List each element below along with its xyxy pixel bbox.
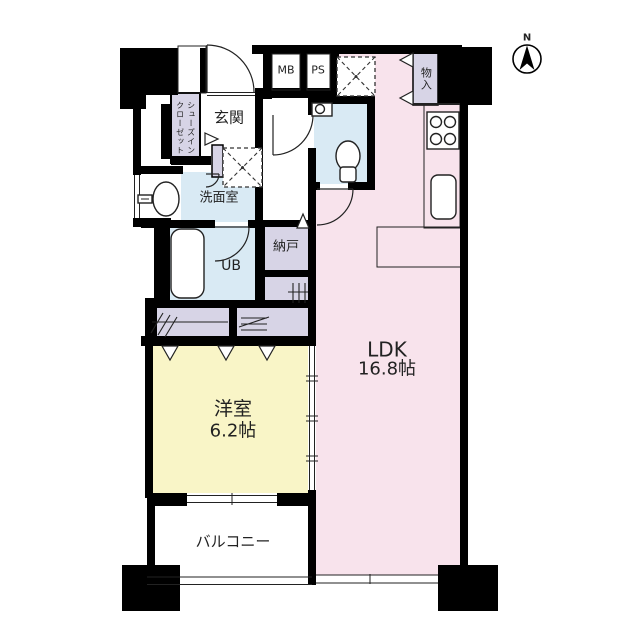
unit-bath-label: UB	[221, 258, 241, 274]
pillar-top-left	[120, 48, 178, 95]
western-room-label: 洋室	[214, 399, 252, 421]
pipe-space-label: PS	[311, 65, 325, 78]
refrigerator-space-icon	[337, 57, 375, 96]
washroom-label: 洗面室	[199, 192, 238, 207]
stove-icon	[427, 112, 459, 149]
floorplan-drawing	[0, 0, 640, 640]
kitchen-sink-icon	[431, 175, 456, 219]
bathtub-icon	[171, 229, 204, 298]
entrance-label: 玄関	[214, 109, 244, 126]
washroom-cabinet	[212, 145, 223, 177]
ldk-size-label: 16.8帖	[358, 360, 416, 381]
washing-machine-space-icon	[223, 148, 262, 187]
entrance-door	[207, 45, 254, 92]
entrance-step-marker	[205, 133, 218, 145]
western-room-size-label: 6.2帖	[210, 422, 257, 443]
meter-box-label: MB	[277, 65, 294, 78]
pillar-bottom-right	[438, 565, 498, 611]
shoes-closet-label-line1: シューズイン	[186, 101, 195, 155]
shoes-closet-label-line2: クローゼット	[175, 101, 184, 155]
balcony-label: バルコニー	[196, 533, 271, 550]
toilet-door	[273, 115, 313, 155]
washbasin-icon	[138, 182, 179, 216]
pillar-top-right	[438, 47, 492, 105]
nando-label: 納戸	[273, 241, 299, 256]
floorplan: LDK 16.8帖 洋室 6.2帖 バルコニー 玄関 洗面室 UB 納戸 MB …	[0, 0, 640, 640]
compass-north-label: N	[523, 32, 531, 44]
monoire-label: 物入	[419, 67, 432, 91]
compass-north-icon	[513, 45, 541, 73]
